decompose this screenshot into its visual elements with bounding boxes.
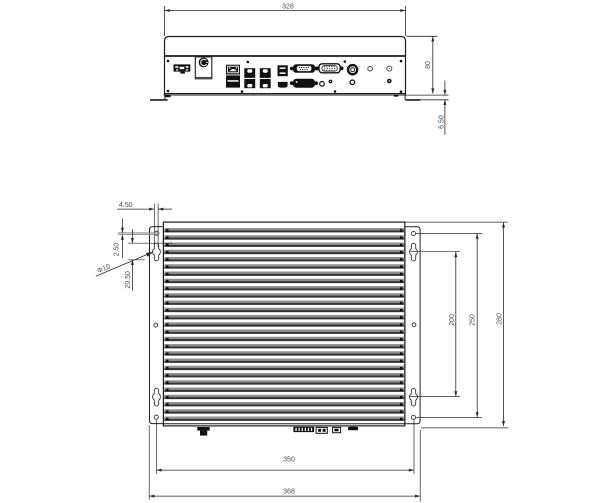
svg-text:250: 250 xyxy=(470,314,477,326)
svg-text:200: 200 xyxy=(449,314,456,326)
svg-text:20.50: 20.50 xyxy=(125,271,132,289)
svg-text:80: 80 xyxy=(425,61,432,69)
svg-text:350: 350 xyxy=(283,456,295,463)
svg-text:328: 328 xyxy=(282,4,294,11)
svg-text:4.50: 4.50 xyxy=(119,202,133,209)
svg-text:2.50: 2.50 xyxy=(114,243,121,257)
svg-text:6.50: 6.50 xyxy=(439,115,446,129)
svg-text:368: 368 xyxy=(283,488,295,495)
svg-text:280: 280 xyxy=(496,313,503,325)
